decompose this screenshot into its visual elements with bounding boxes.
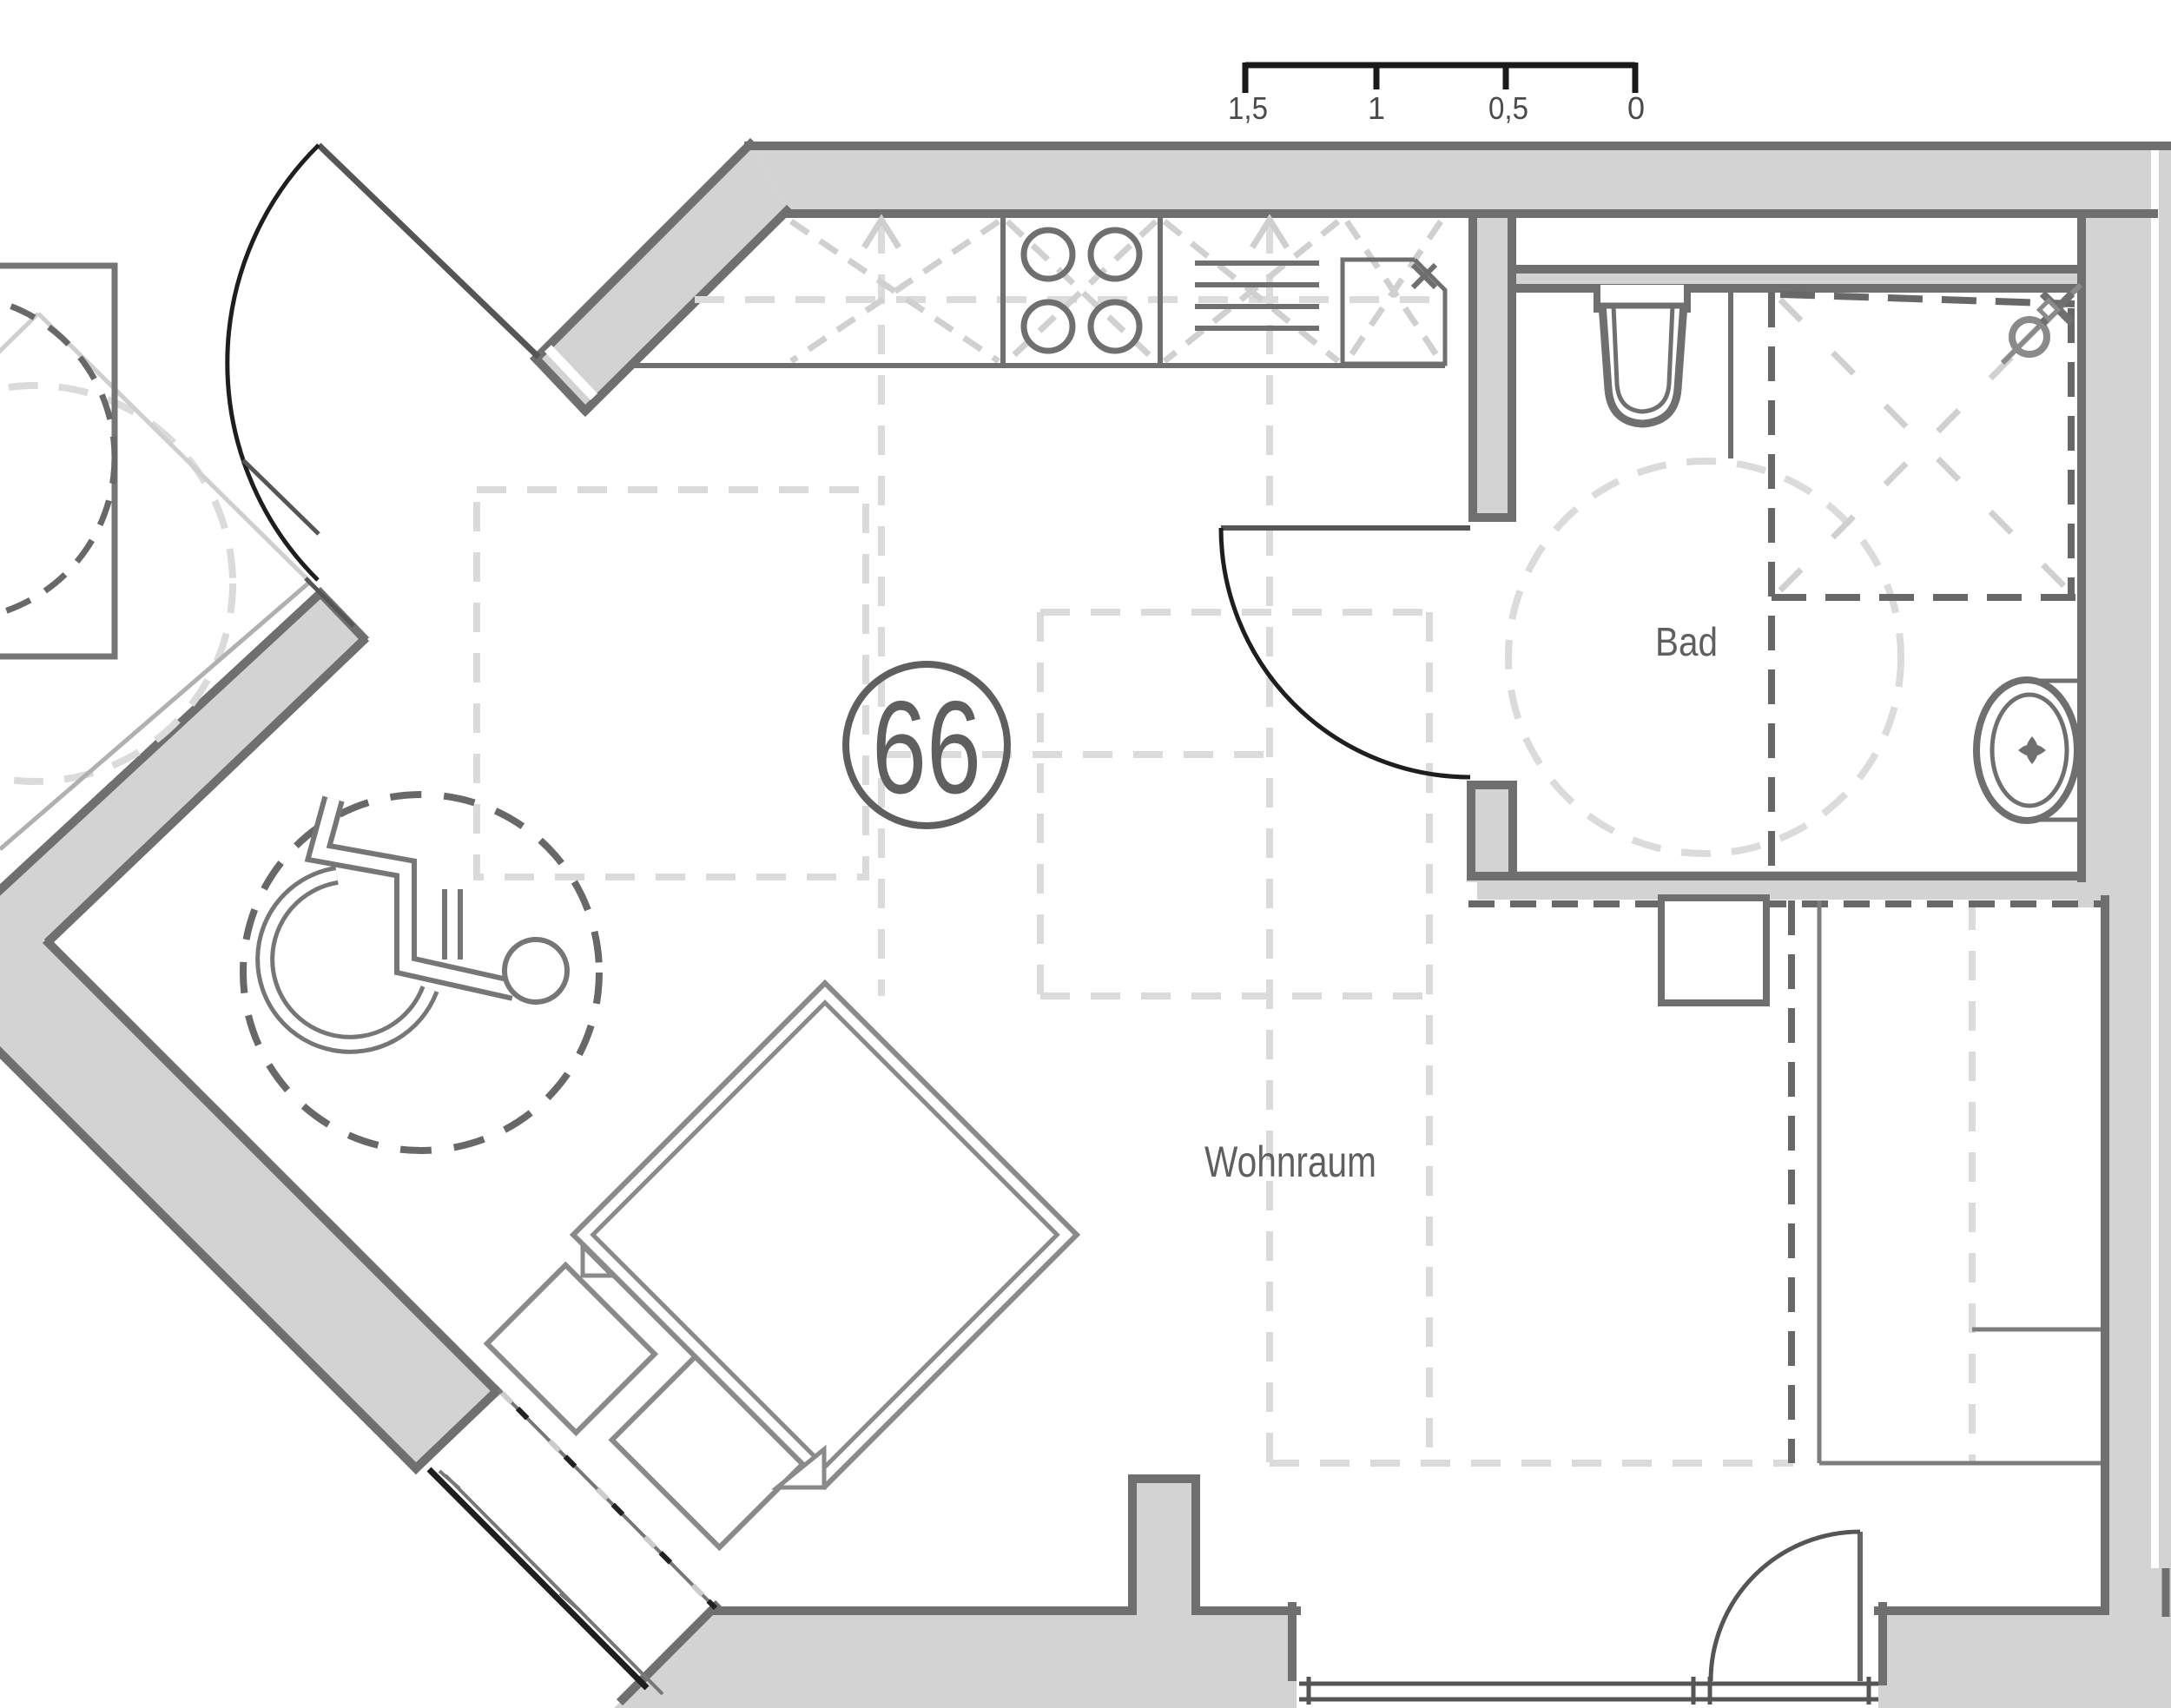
svg-text:1: 1 (1368, 90, 1385, 126)
svg-text:Bad: Bad (1655, 619, 1718, 664)
svg-text:Wohnraum: Wohnraum (1204, 1138, 1376, 1186)
svg-text:1,5: 1,5 (1228, 90, 1268, 126)
svg-text:0,5: 0,5 (1488, 90, 1528, 126)
svg-text:66: 66 (872, 674, 981, 821)
svg-text:0: 0 (1627, 90, 1645, 126)
